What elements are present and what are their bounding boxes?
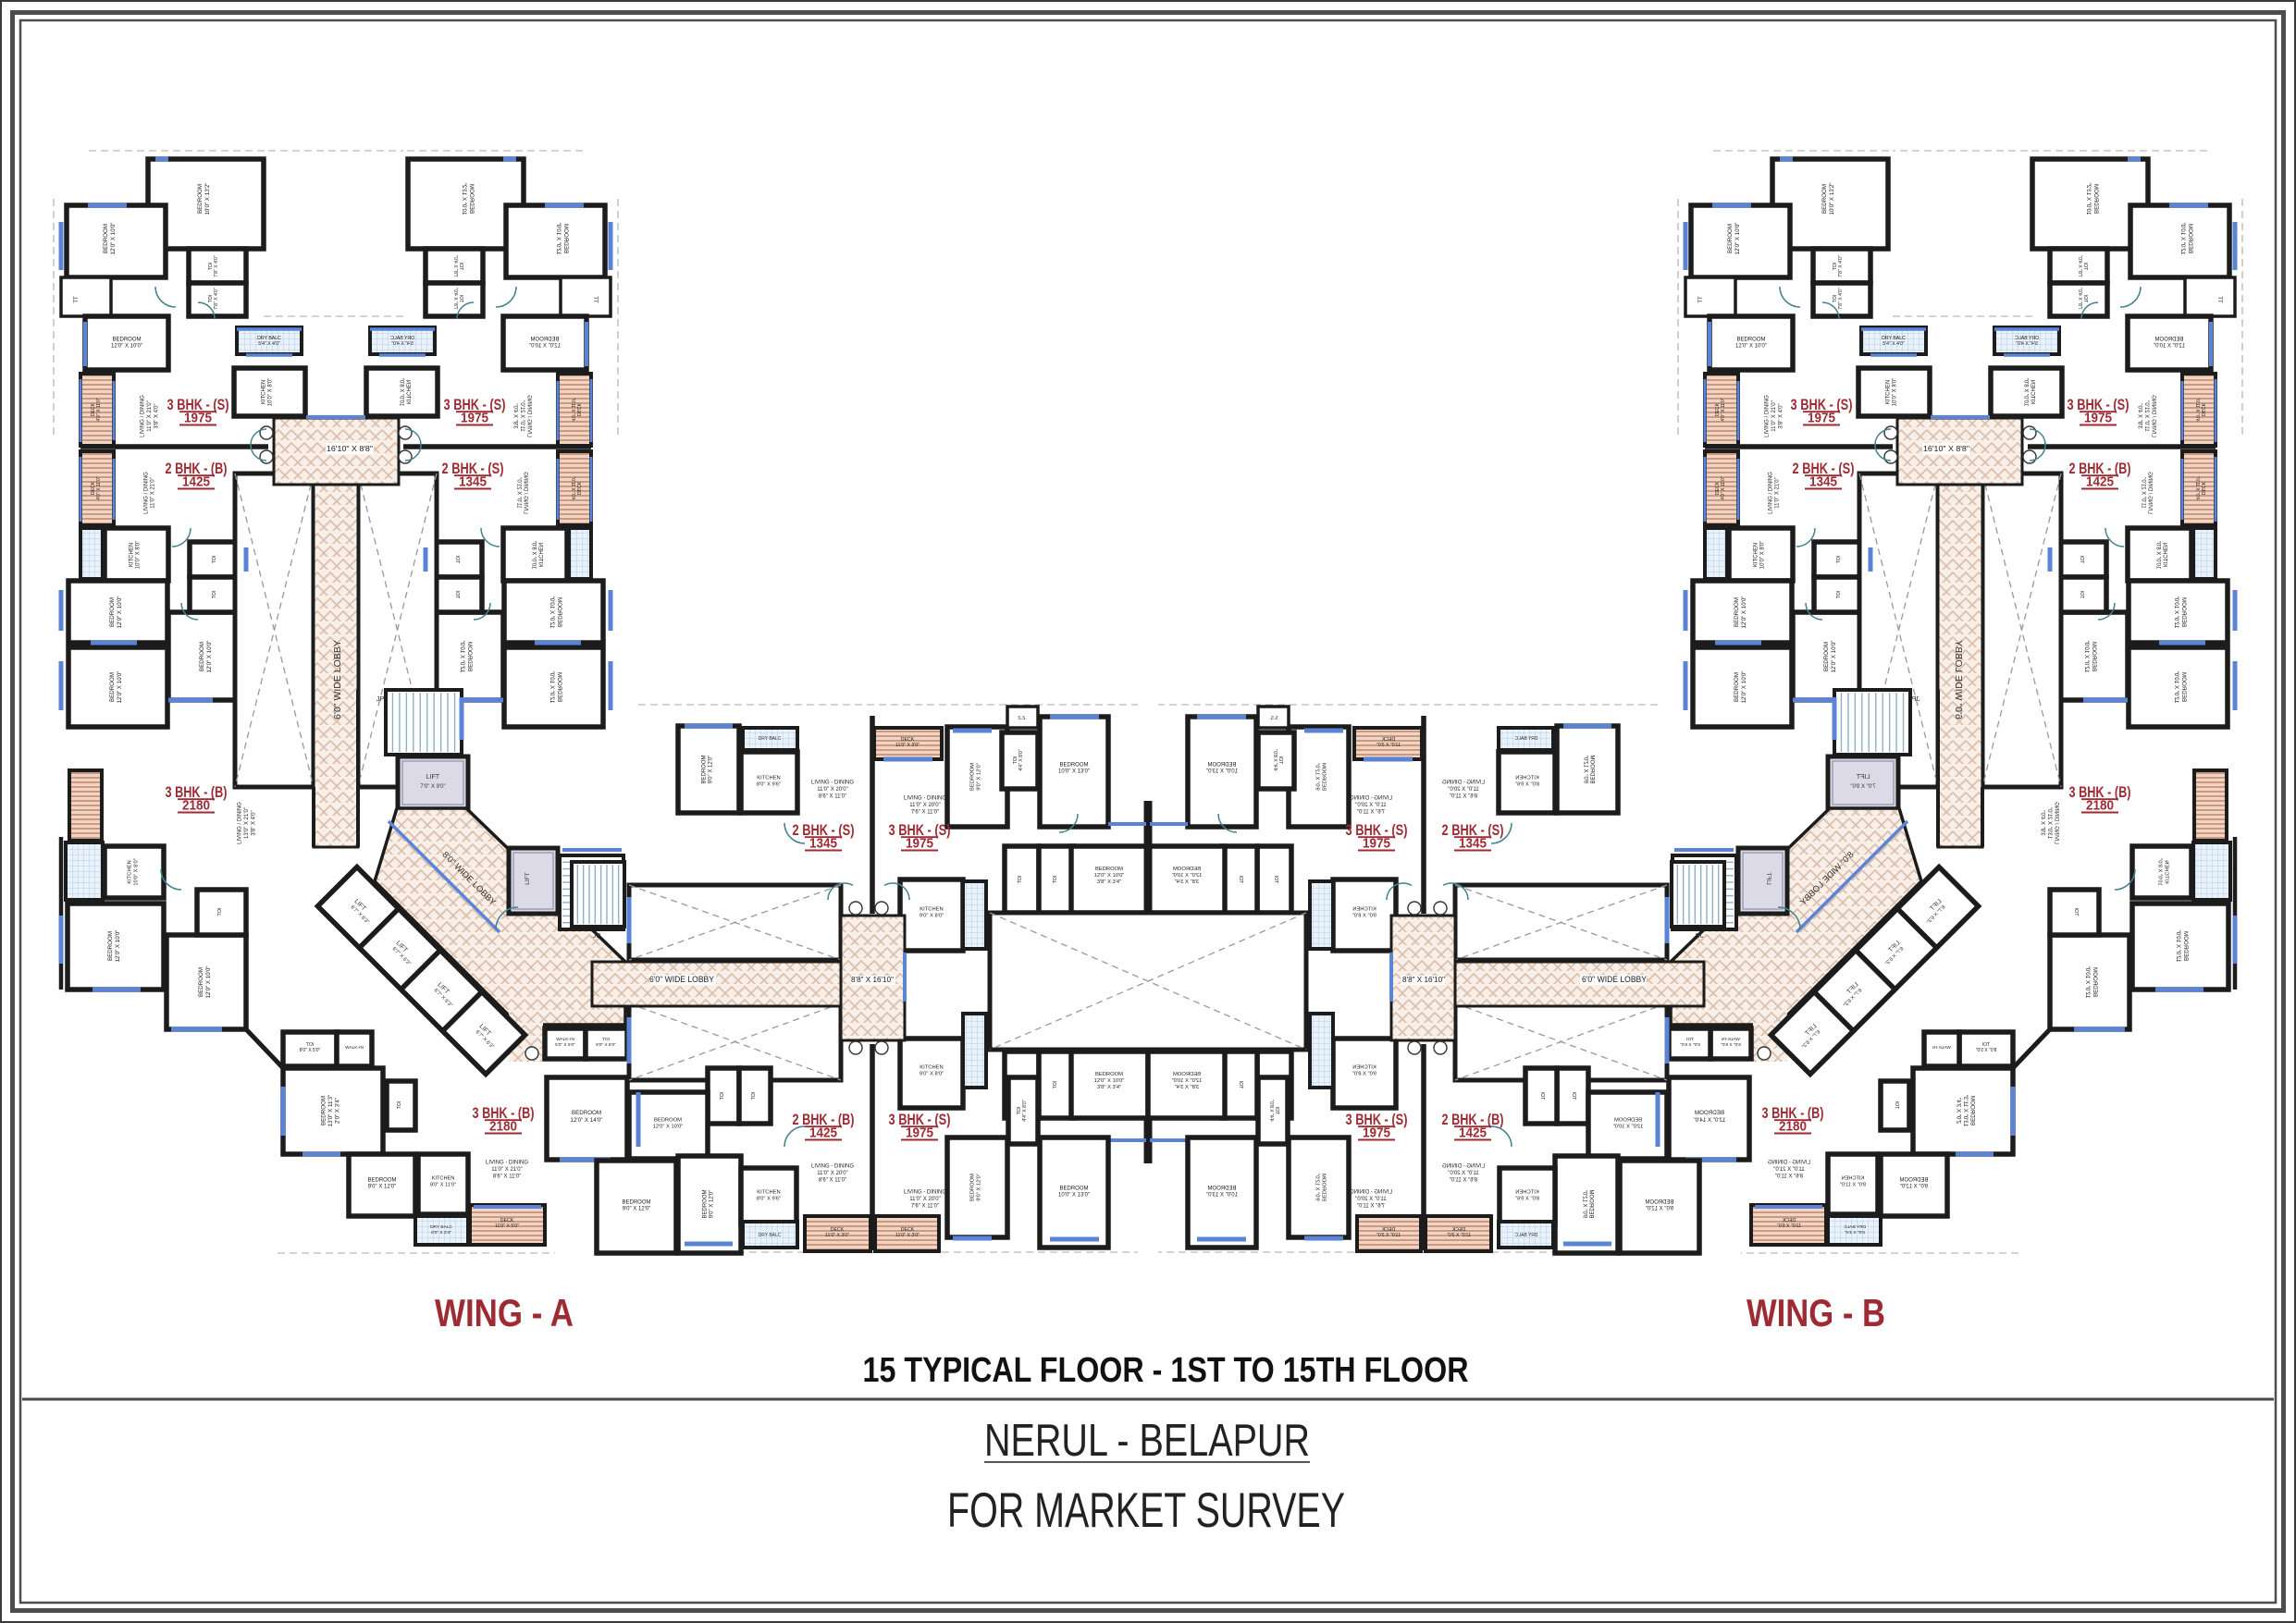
svg-text:11'0" X 21'0": 11'0" X 21'0": [491, 1167, 522, 1173]
svg-text:8'0" X 9'6": 8'0" X 9'6": [757, 782, 781, 788]
svg-text:13'0" X 11'3": 13'0" X 11'3": [327, 1095, 334, 1127]
svg-text:BEDROOM: BEDROOM: [1059, 762, 1088, 768]
svg-text:11'0" X 3'0": 11'0" X 3'0": [895, 1233, 920, 1238]
svg-text:9'0" X 12'0": 9'0" X 12'0": [709, 756, 714, 784]
svg-text:BEDROOM: BEDROOM: [622, 1199, 650, 1205]
svg-text:12'0" X 10'0": 12'0" X 10'0": [1094, 873, 1125, 879]
svg-text:TOI: TOI: [1013, 756, 1018, 765]
svg-text:8'0" X 5'0": 8'0" X 5'0": [596, 1042, 616, 1048]
svg-text:NERUL - BELAPUR: NERUL - BELAPUR: [984, 1416, 1310, 1466]
svg-text:9'0" X 12'0": 9'0" X 12'0": [977, 1174, 982, 1201]
svg-text:DECK: DECK: [901, 737, 915, 743]
svg-text:KITCHEN: KITCHEN: [432, 1176, 455, 1182]
svg-text:LIVING - DINING: LIVING - DINING: [486, 1161, 528, 1166]
svg-text:JP: JP: [593, 931, 601, 940]
svg-text:DRY BALC: DRY BALC: [430, 1224, 452, 1230]
svg-text:3'8" X 3'4": 3'8" X 3'4": [1097, 879, 1121, 885]
svg-text:12'0" X 10'0": 12'0" X 10'0": [206, 641, 213, 673]
svg-text:7'8" X 4'0": 7'8" X 4'0": [214, 288, 219, 310]
svg-text:KITCHEN: KITCHEN: [129, 543, 134, 567]
svg-text:KITCHEN: KITCHEN: [757, 1189, 780, 1195]
svg-text:16'10" X 8'8": 16'10" X 8'8": [327, 444, 373, 453]
svg-text:BEDROOM: BEDROOM: [109, 597, 116, 627]
svg-text:KITCHEN: KITCHEN: [757, 775, 780, 781]
svg-text:9'0" X 12'0": 9'0" X 12'0": [977, 763, 982, 791]
svg-text:11'0" X 20'0": 11'0" X 20'0": [817, 787, 847, 793]
svg-text:11'0" X 21'0": 11'0" X 21'0": [151, 477, 156, 508]
svg-text:4'4" X 8'0": 4'4" X 8'0": [1022, 1100, 1028, 1122]
svg-text:11'0" X 21'0": 11'0" X 21'0": [147, 400, 153, 431]
svg-text:TOI: TOI: [1053, 1081, 1058, 1089]
svg-text:DRY BALC: DRY BALC: [257, 336, 281, 341]
svg-text:13'0" X 21'0": 13'0" X 21'0": [244, 807, 250, 839]
svg-text:9'0" X 12'0": 9'0" X 12'0": [623, 1207, 651, 1212]
svg-text:10'0" X 8'0": 10'0" X 8'0": [134, 858, 140, 886]
svg-text:15 TYPICAL FLOOR - 1ST TO 15TH: 15 TYPICAL FLOOR - 1ST TO 15TH FLOOR: [863, 1351, 1469, 1390]
svg-text:KITCHEN: KITCHEN: [127, 860, 132, 883]
svg-text:10'0" X 8'0": 10'0" X 8'0": [268, 378, 274, 407]
svg-text:3'8" X 3'4": 3'8" X 3'4": [1097, 1085, 1121, 1090]
svg-text:BEDROOM: BEDROOM: [702, 1189, 708, 1218]
svg-text:DECK: DECK: [500, 1218, 514, 1223]
svg-text:DRY BALC: DRY BALC: [759, 736, 782, 742]
svg-text:KITCHEN: KITCHEN: [261, 380, 266, 404]
svg-text:BEDROOM: BEDROOM: [701, 755, 707, 783]
svg-text:LIVING / DINING: LIVING / DINING: [238, 802, 243, 844]
svg-text:3'8" X 4'0": 3'8" X 4'0": [154, 403, 159, 428]
svg-text:TOI: TOI: [397, 1101, 402, 1110]
svg-text:12'0" X 10'0": 12'0" X 10'0": [111, 344, 142, 350]
svg-text:BEDROOM: BEDROOM: [197, 184, 204, 214]
svg-text:BEDROOM: BEDROOM: [1095, 867, 1123, 872]
svg-text:TOI: TOI: [212, 591, 217, 599]
svg-text:12'0" X 10'0": 12'0" X 10'0": [115, 930, 121, 963]
svg-text:7'6" X 11'0": 7'6" X 11'0": [911, 809, 939, 815]
svg-text:BEDROOM: BEDROOM: [969, 1174, 975, 1201]
svg-text:DECK: DECK: [831, 1227, 845, 1233]
svg-text:TOI: TOI: [306, 1042, 314, 1048]
svg-text:12'0" X 14'0": 12'0" X 14'0": [571, 1117, 603, 1124]
svg-text:8'6" X 11'0": 8'6" X 11'0": [819, 793, 846, 799]
svg-text:BEDROOM: BEDROOM: [320, 1096, 327, 1125]
svg-text:9'0" X 12'0": 9'0" X 12'0": [368, 1185, 397, 1190]
svg-text:6'0" WIDE LOBBY: 6'0" WIDE LOBBY: [1582, 975, 1647, 984]
svg-text:7'8" X 4'0": 7'8" X 4'0": [214, 255, 219, 277]
svg-text:7'0" X 9'0": 7'0" X 9'0": [420, 784, 445, 790]
svg-text:11'0" X 3'0": 11'0" X 3'0": [895, 743, 920, 748]
svg-text:LIVING - DINING: LIVING - DINING: [811, 781, 854, 786]
svg-text:12'0" X 10'0": 12'0" X 10'0": [117, 596, 123, 629]
svg-text:BEDROOM: BEDROOM: [198, 967, 204, 997]
svg-text:BEDROOM: BEDROOM: [1095, 1072, 1123, 1077]
svg-text:BEDROOM: BEDROOM: [109, 672, 116, 702]
svg-text:9'0" X 8'0": 9'0" X 8'0": [920, 1072, 944, 1077]
svg-text:BEDROOM: BEDROOM: [969, 763, 975, 791]
svg-text:S.S.: S.S.: [1018, 716, 1026, 721]
svg-text:TOI: TOI: [1018, 876, 1023, 884]
svg-text:TOI: TOI: [1017, 1107, 1022, 1115]
svg-text:BEDROOM: BEDROOM: [199, 642, 205, 671]
svg-text:4'4" X 8'0": 4'4" X 8'0": [1018, 749, 1024, 771]
svg-text:BEDROOM: BEDROOM: [112, 337, 141, 342]
svg-text:BEDROOM: BEDROOM: [367, 1177, 396, 1183]
svg-text:8'6" X 11'0": 8'6" X 11'0": [493, 1174, 521, 1179]
svg-text:8'8" X 16'10": 8'8" X 16'10": [1402, 976, 1445, 984]
svg-text:LIVING - DINING: LIVING - DINING: [811, 1164, 854, 1170]
svg-text:12'0" X 10'0": 12'0" X 10'0": [117, 671, 123, 704]
svg-text:2'0" X 3'4": 2'0" X 3'4": [335, 1098, 341, 1124]
svg-text:TOI: TOI: [720, 1092, 725, 1100]
svg-text:LIVING / DINING: LIVING / DINING: [143, 472, 149, 514]
svg-text:LIVING - DINING: LIVING - DINING: [904, 796, 946, 802]
svg-text:11'0" X 3'0": 11'0" X 3'0": [825, 1233, 849, 1238]
svg-text:9'0" X 8'0": 9'0" X 8'0": [920, 914, 944, 919]
svg-text:TOI: TOI: [602, 1037, 610, 1042]
svg-text:WING - B: WING - B: [1747, 1291, 1885, 1334]
svg-text:LIVING - DINING: LIVING - DINING: [904, 1190, 946, 1196]
svg-text:11'0" X 20'0": 11'0" X 20'0": [817, 1171, 847, 1176]
svg-text:DECK: DECK: [91, 481, 96, 495]
svg-text:8'0" X 11'0": 8'0" X 11'0": [430, 1182, 456, 1187]
svg-text:KITCHEN: KITCHEN: [920, 906, 943, 912]
svg-text:10'0" X 13'0": 10'0" X 13'0": [1058, 1193, 1090, 1199]
svg-text:8'6" X 11'0": 8'6" X 11'0": [819, 1177, 846, 1183]
svg-text:8'0" X 9'6": 8'0" X 9'6": [757, 1197, 781, 1202]
svg-text:4'0" X 11'0": 4'0" X 11'0": [96, 476, 102, 499]
svg-text:BEDROOM: BEDROOM: [103, 224, 109, 253]
svg-text:TT: TT: [74, 296, 80, 303]
svg-text:8'0" X 3'4": 8'0" X 3'4": [431, 1230, 451, 1236]
svg-text:TOI: TOI: [1053, 876, 1058, 884]
svg-text:TOI: TOI: [208, 263, 214, 271]
svg-text:6'0" WIDE LOBBY: 6'0" WIDE LOBBY: [332, 640, 343, 719]
svg-text:WALK-IN: WALK-IN: [556, 1037, 574, 1042]
svg-text:11'0" X 5'0": 11'0" X 5'0": [495, 1223, 519, 1229]
svg-text:10'0" X 13'0": 10'0" X 13'0": [1058, 769, 1090, 775]
svg-text:5'4" X 4'0": 5'4" X 4'0": [258, 341, 280, 347]
svg-text:KITCHEN: KITCHEN: [920, 1064, 943, 1070]
svg-text:7'6" X 11'0": 7'6" X 11'0": [911, 1203, 939, 1209]
svg-text:WING - A: WING - A: [435, 1291, 574, 1334]
svg-text:12'0" X 10'0": 12'0" X 10'0": [653, 1125, 684, 1130]
svg-text:BEDROOM: BEDROOM: [654, 1117, 682, 1123]
svg-text:8'0" X 5'0": 8'0" X 5'0": [300, 1048, 321, 1053]
svg-text:TOI: TOI: [212, 556, 217, 564]
svg-text:12'0" X 10'0": 12'0" X 10'0": [110, 223, 117, 255]
svg-text:11'0" X 20'0": 11'0" X 20'0": [909, 1197, 940, 1202]
svg-text:10'0" X 8'0": 10'0" X 8'0": [136, 541, 142, 570]
svg-text:16'10" X 8'8": 16'10" X 8'8": [1923, 444, 1969, 453]
svg-text:DECK: DECK: [901, 1227, 915, 1233]
svg-text:BEDROOM: BEDROOM: [572, 1110, 601, 1116]
svg-text:12'0" X 10'0": 12'0" X 10'0": [1094, 1078, 1125, 1084]
svg-text:TOI: TOI: [751, 1092, 757, 1100]
svg-text:4'0" X 11'0": 4'0" X 11'0": [96, 398, 102, 421]
svg-text:BEDROOM: BEDROOM: [107, 931, 114, 961]
svg-text:LIFT: LIFT: [525, 872, 531, 884]
svg-text:DRY BALC: DRY BALC: [759, 1233, 782, 1238]
svg-text:3'8" X 4'0": 3'8" X 4'0": [251, 810, 256, 835]
svg-text:LIVING / DINING: LIVING / DINING: [141, 395, 146, 437]
svg-text:TOI: TOI: [208, 295, 214, 303]
svg-text:BEDROOM: BEDROOM: [1059, 1186, 1088, 1191]
svg-text:8'8" X 16'10": 8'8" X 16'10": [851, 976, 894, 984]
svg-text:TOI: TOI: [217, 908, 223, 916]
svg-text:12'0" X 10'0": 12'0" X 10'0": [205, 966, 212, 999]
svg-text:6'0" WIDE LOBBY: 6'0" WIDE LOBBY: [649, 975, 714, 984]
svg-text:11'0" X 20'0": 11'0" X 20'0": [909, 803, 940, 808]
svg-text:LIFT: LIFT: [426, 774, 440, 781]
svg-text:WALK-IN: WALK-IN: [345, 1045, 364, 1051]
svg-text:DECK: DECK: [91, 402, 96, 416]
svg-text:9'0" X 12'0": 9'0" X 12'0": [710, 1190, 715, 1219]
svg-text:FOR MARKET SURVEY: FOR MARKET SURVEY: [947, 1483, 1345, 1538]
svg-text:JP: JP: [376, 695, 385, 703]
svg-text:10'0" X 13'2": 10'0" X 13'2": [204, 183, 211, 215]
svg-text:5'0" X 5'0": 5'0" X 5'0": [555, 1042, 575, 1048]
